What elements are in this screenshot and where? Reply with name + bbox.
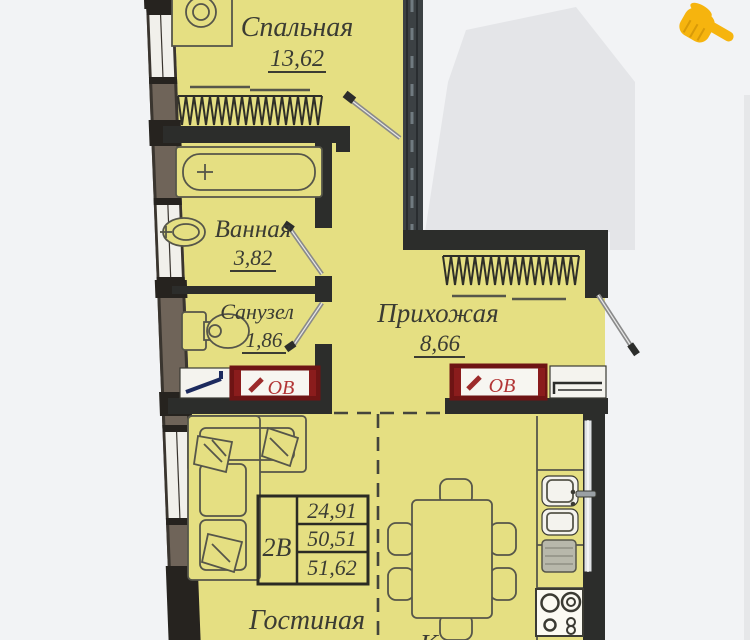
- radiator-label: ОВ: [489, 375, 516, 397]
- chair: [490, 568, 516, 600]
- chair: [490, 523, 516, 555]
- svg-text:Прихожая: Прихожая: [376, 298, 498, 328]
- radiator-label: ОВ: [268, 377, 295, 399]
- wall-hallway-top: [403, 230, 608, 250]
- windowsill-panel-right: [550, 366, 606, 398]
- wall-inner-vertical-mid: [315, 276, 332, 302]
- svg-text:Гостиная: Гостиная: [248, 605, 365, 636]
- wall-bathroom-toilet: [172, 286, 315, 294]
- svg-text:1,86: 1,86: [246, 328, 283, 352]
- wall-bedroom-right: [403, 0, 423, 232]
- window: [149, 14, 175, 78]
- chair: [388, 568, 414, 600]
- radiator-left: ОВ: [232, 368, 318, 399]
- windowsill-panel-left: [180, 368, 230, 398]
- spec-type: 2В: [263, 533, 292, 562]
- bathtub-icon: [176, 147, 322, 197]
- svg-text:Санузел: Санузел: [220, 299, 294, 324]
- svg-text:Ванная: Ванная: [215, 216, 292, 243]
- svg-text:13,62: 13,62: [270, 46, 324, 72]
- wall-entrance-jamb: [585, 250, 608, 298]
- svg-text:3,82: 3,82: [233, 245, 273, 270]
- spec-total-area: 51,62: [307, 555, 357, 580]
- spec-area: 50,51: [307, 526, 357, 551]
- svg-text:Кухня: Кухня: [419, 629, 486, 640]
- floor-plan: ОВ ОВ: [0, 0, 750, 640]
- table-top: [412, 500, 492, 618]
- room-label-living: Гостиная: [248, 605, 365, 636]
- photo-edge-strip: [744, 95, 750, 640]
- room-label-kitchen: Кухня: [419, 629, 486, 640]
- spec-living-area: 24,91: [307, 498, 357, 523]
- svg-text:8,66: 8,66: [420, 331, 461, 356]
- chair: [388, 523, 414, 555]
- radiator-right: ОВ: [452, 366, 545, 398]
- dish-tray: [542, 540, 576, 572]
- svg-text:Спальная: Спальная: [241, 12, 354, 43]
- wall-bedroom-door-jamb: [336, 126, 350, 152]
- washing-machine-icon: [172, 0, 232, 46]
- wall-kitchen-right: [583, 414, 605, 640]
- stove-icon: [536, 589, 583, 636]
